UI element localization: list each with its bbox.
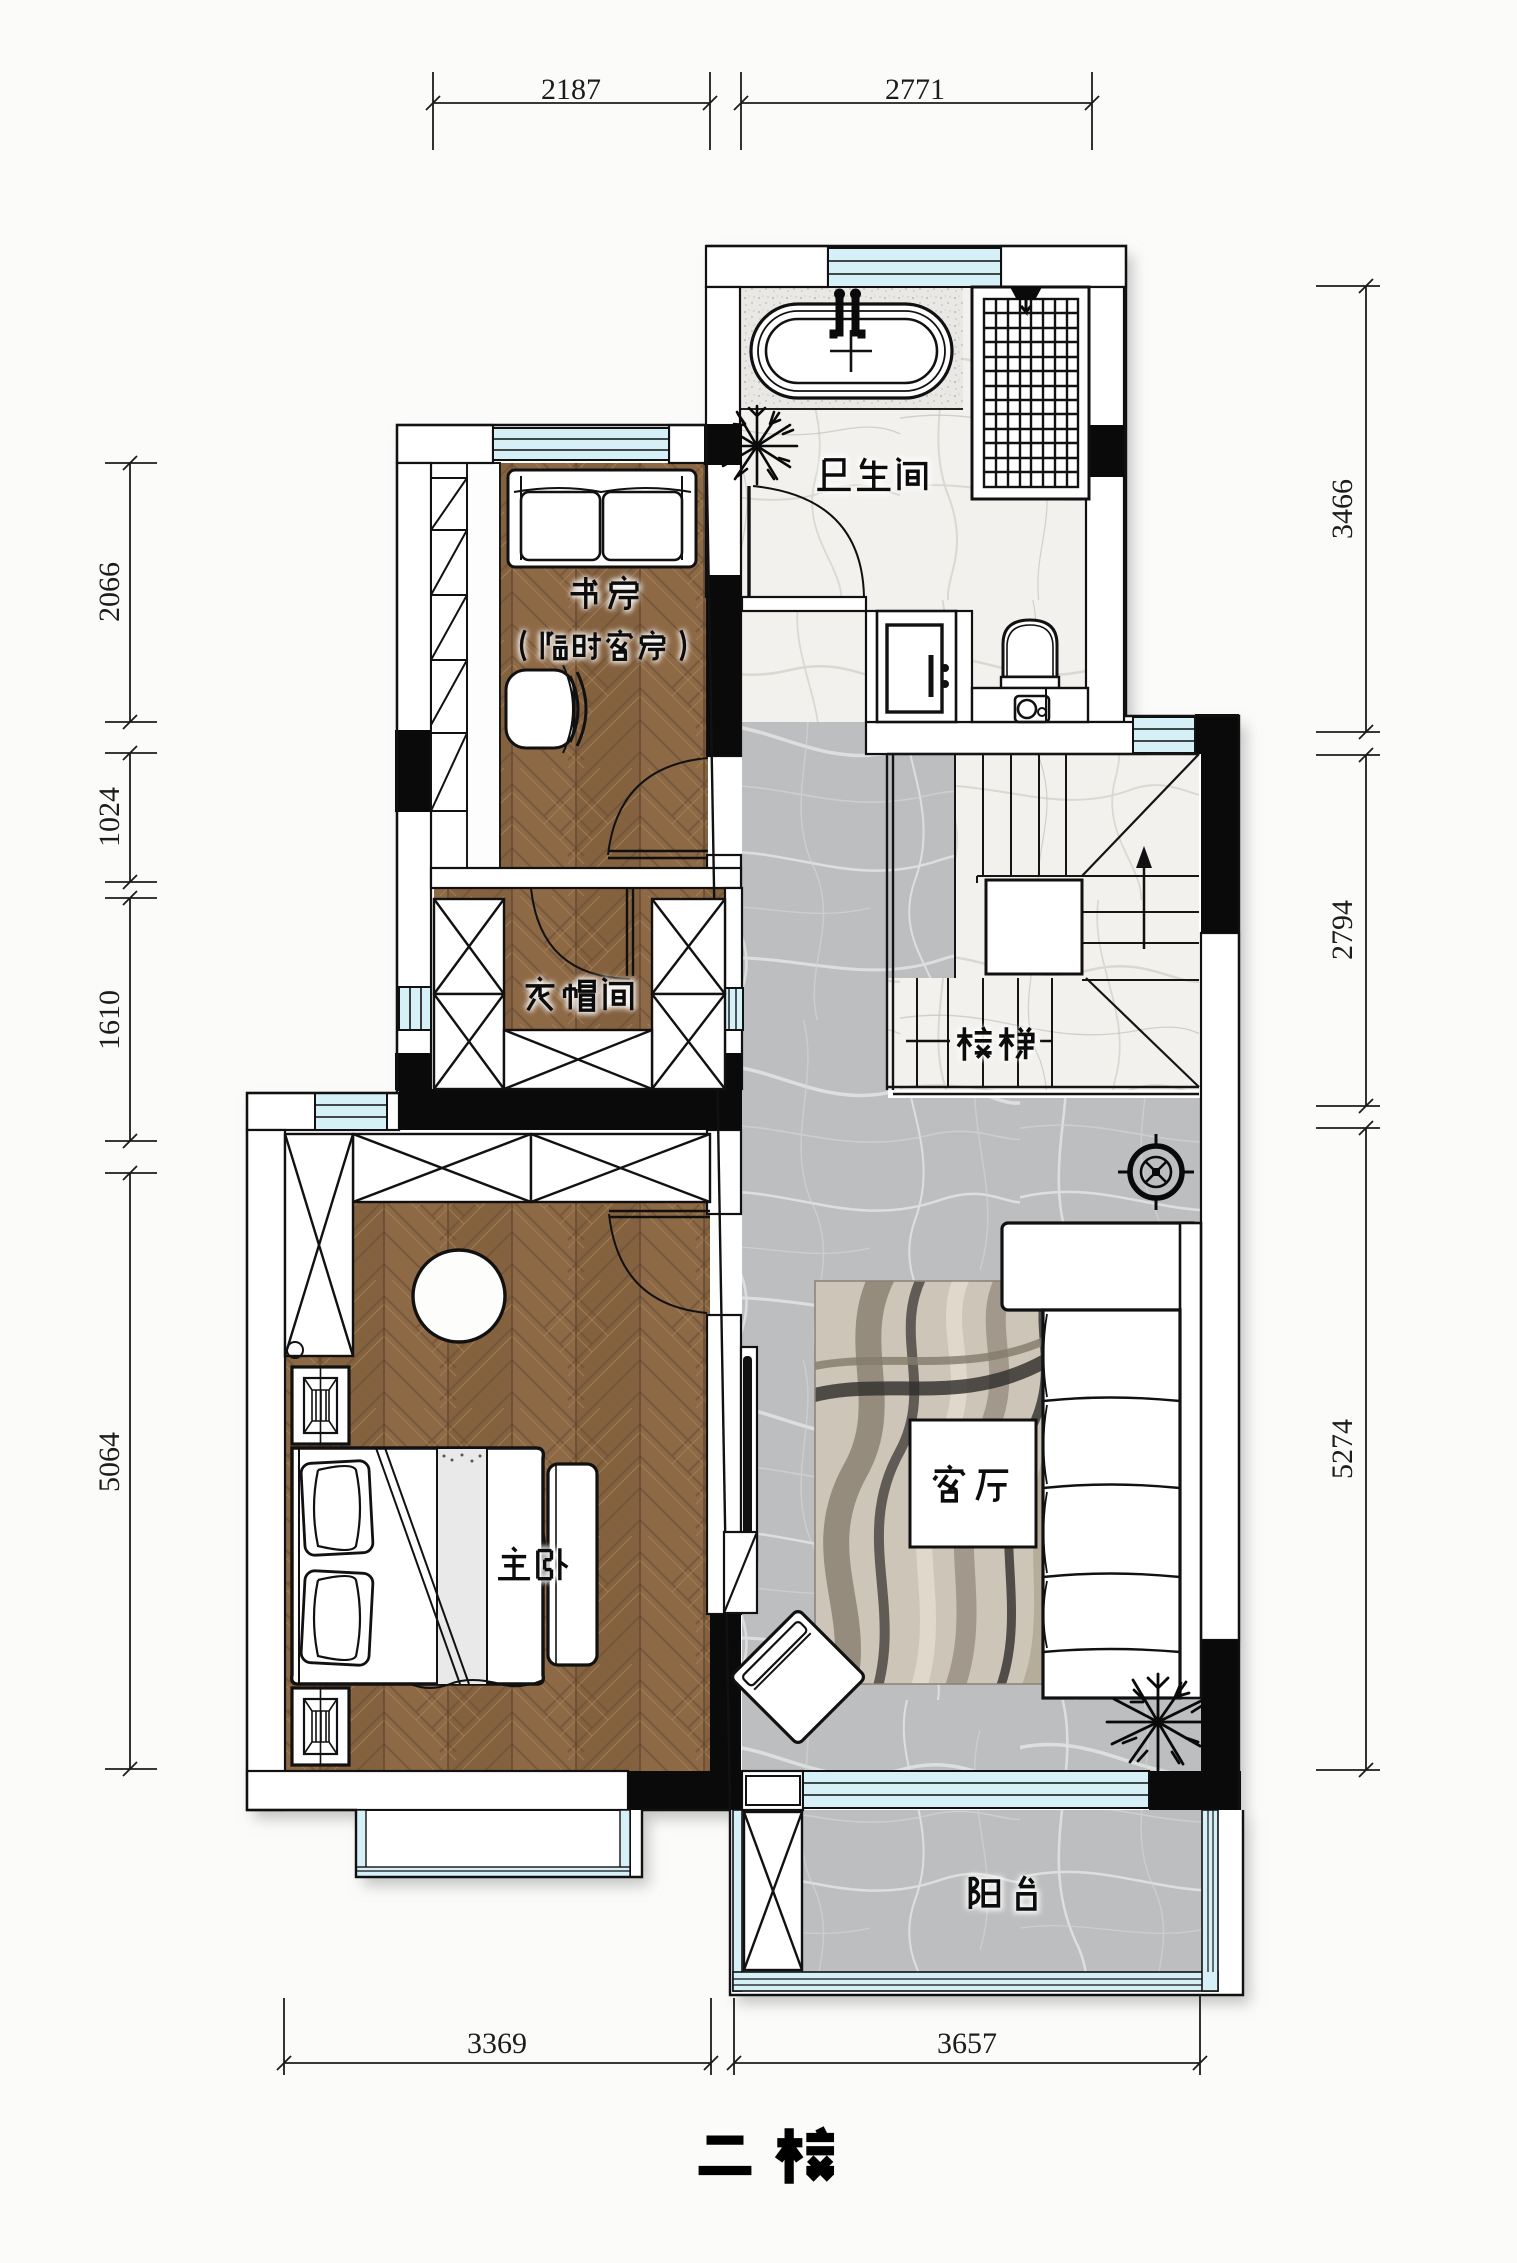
- svg-text:1610: 1610: [93, 990, 126, 1050]
- svg-text:3466: 3466: [1326, 479, 1359, 539]
- svg-text:3657: 3657: [937, 2027, 997, 2060]
- svg-text:2187: 2187: [541, 73, 601, 106]
- svg-text:3369: 3369: [467, 2027, 527, 2060]
- svg-text:2771: 2771: [885, 73, 945, 106]
- svg-text:2794: 2794: [1326, 900, 1359, 960]
- svg-text:5274: 5274: [1326, 1419, 1359, 1479]
- svg-text:2066: 2066: [93, 562, 126, 622]
- svg-text:5064: 5064: [93, 1432, 126, 1492]
- svg-text:1024: 1024: [93, 787, 126, 847]
